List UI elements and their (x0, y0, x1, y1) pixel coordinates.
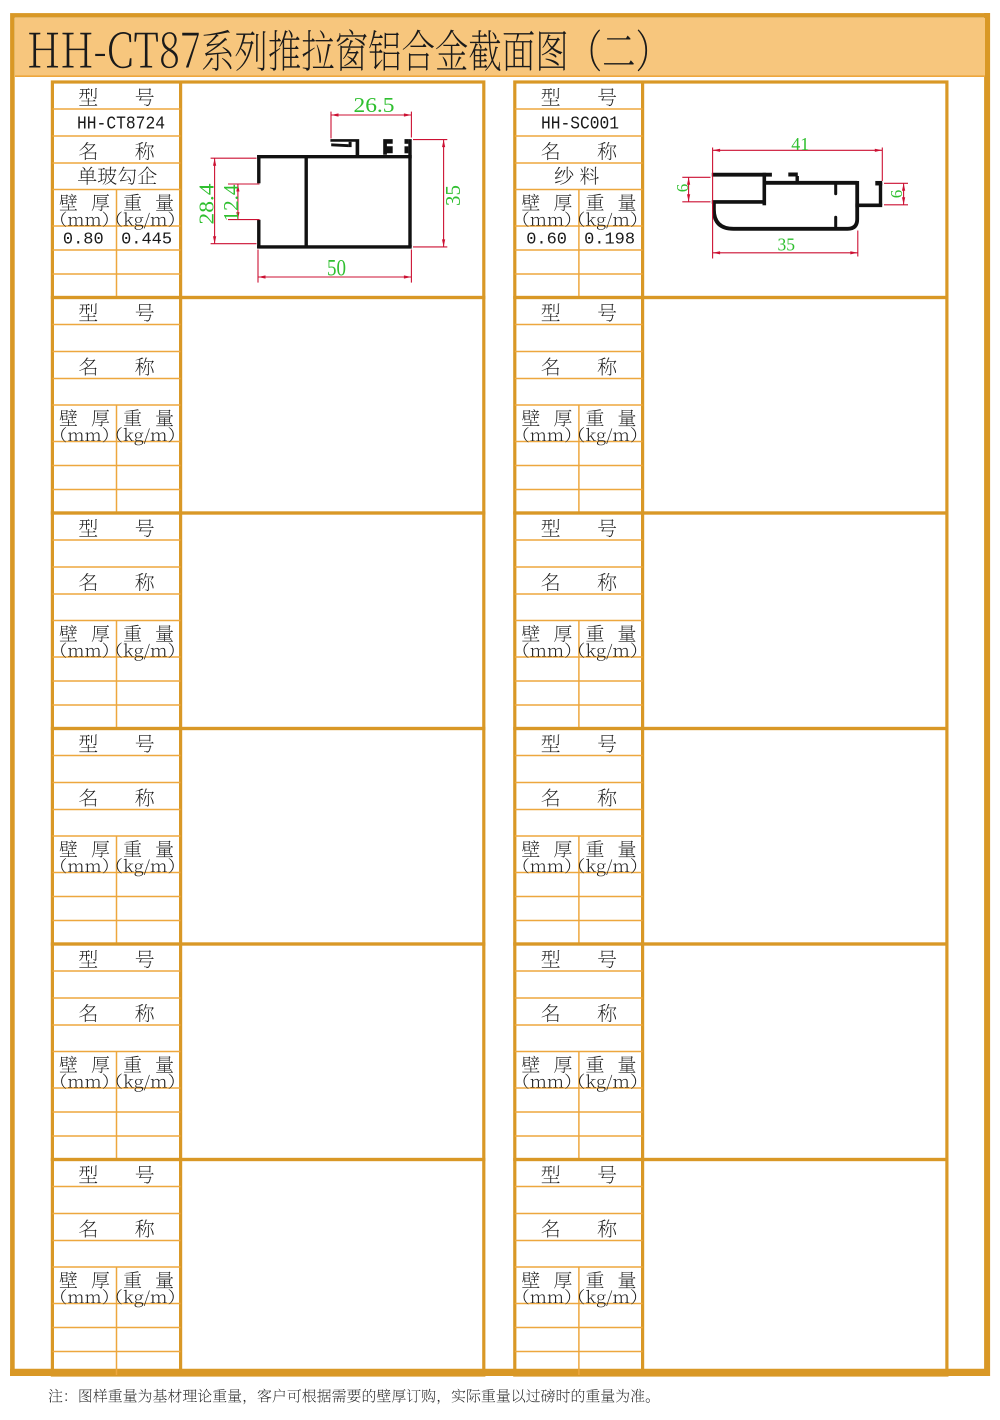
svg-text:6: 6 (673, 184, 692, 193)
svg-text:0.80: 0.80 (63, 231, 104, 250)
svg-text:28.4: 28.4 (195, 183, 219, 225)
svg-text:6: 6 (887, 190, 906, 199)
svg-text:50: 50 (327, 256, 346, 281)
svg-text:12.4: 12.4 (219, 184, 243, 222)
svg-text:HH-CT8724: HH-CT8724 (77, 114, 165, 134)
svg-text:35: 35 (777, 234, 795, 254)
svg-text:0.445: 0.445 (121, 231, 172, 250)
svg-text:26.5: 26.5 (354, 93, 395, 117)
svg-text:0.60: 0.60 (526, 231, 567, 250)
svg-text:35: 35 (441, 185, 465, 206)
svg-text:HH-SC001: HH-SC001 (541, 114, 619, 134)
svg-text:0.198: 0.198 (584, 231, 635, 250)
svg-text:41: 41 (791, 134, 809, 154)
